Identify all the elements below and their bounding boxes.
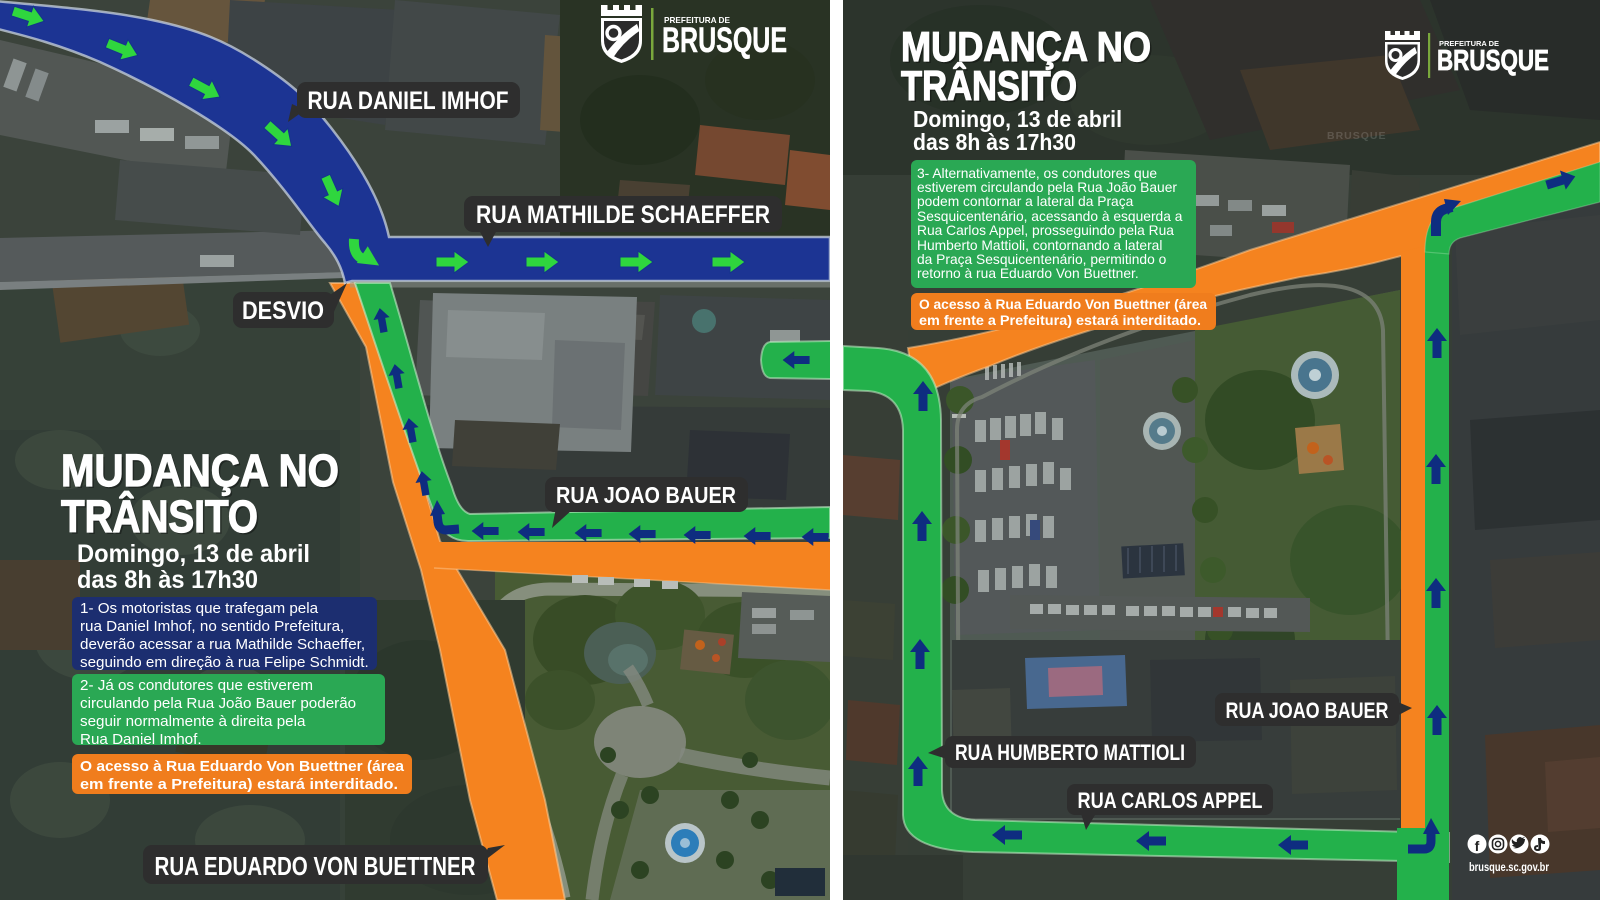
svg-text:BRUSQUE: BRUSQUE (1437, 45, 1549, 77)
svg-text:Rua Daniel Imhof.: Rua Daniel Imhof. (80, 731, 202, 748)
svg-text:TRÂNSITO: TRÂNSITO (61, 491, 258, 542)
svg-text:rua Daniel Imhof, no sentido P: rua Daniel Imhof, no sentido Prefeitura, (80, 618, 344, 635)
svg-text:em frente a Prefeitura) estará: em frente a Prefeitura) estará interdita… (919, 313, 1201, 329)
svg-text:Humberto Mattioli, contornando: Humberto Mattioli, contornando a lateral (917, 238, 1162, 253)
svg-text:f: f (1475, 838, 1480, 854)
svg-text:podem contornar a lateral da P: podem contornar a lateral da Praça (917, 194, 1134, 209)
svg-text:BRUSQUE: BRUSQUE (662, 21, 787, 60)
svg-text:seguindo em direção à rua Feli: seguindo em direção à rua Felipe Schmidt… (80, 654, 369, 671)
svg-text:O acesso à Rua Eduardo Von Bue: O acesso à Rua Eduardo Von Buettner (áre… (919, 297, 1207, 313)
svg-text:das 8h às 17h30: das 8h às 17h30 (913, 129, 1076, 155)
svg-text:3- Alternativamente, os condut: 3- Alternativamente, os condutores que (917, 166, 1157, 181)
svg-text:brusque.sc.gov.br: brusque.sc.gov.br (1469, 862, 1549, 874)
svg-text:deverão acessar a rua Mathilde: deverão acessar a rua Mathilde Schaeffer… (80, 636, 365, 653)
svg-text:Rua Carlos Appel, prosseguindo: Rua Carlos Appel, prosseguindo pela Rua (917, 223, 1174, 238)
svg-text:das 8h às 17h30: das 8h às 17h30 (77, 566, 258, 594)
svg-text:RUA CARLOS APPEL: RUA CARLOS APPEL (1078, 788, 1263, 813)
svg-text:RUA MATHILDE SCHAEFFER: RUA MATHILDE SCHAEFFER (476, 201, 770, 229)
svg-text:em frente a Prefeitura) estará: em frente a Prefeitura) estará interdita… (80, 776, 398, 793)
svg-text:seguir normalmente à direita p: seguir normalmente à direita pela (80, 713, 306, 730)
svg-text:circulando pela Rua João Bauer: circulando pela Rua João Bauer poderão (80, 695, 356, 712)
svg-text:MUDANÇA NO: MUDANÇA NO (61, 445, 339, 496)
svg-text:retorno à rua Eduardo Von Buet: retorno à rua Eduardo Von Buettner. (917, 266, 1139, 281)
svg-text:1- Os motoristas que trafegam: 1- Os motoristas que trafegam pela (80, 600, 319, 617)
svg-text:Domingo, 13 de abril: Domingo, 13 de abril (77, 540, 310, 568)
svg-text:TRÂNSITO: TRÂNSITO (901, 61, 1077, 109)
svg-text:RUA JOAO BAUER: RUA JOAO BAUER (1226, 698, 1389, 723)
svg-text:RUA DANIEL IMHOF: RUA DANIEL IMHOF (308, 87, 509, 115)
svg-text:Sesquicentenário, acessando à: Sesquicentenário, acessando à esquerda a (917, 209, 1183, 224)
svg-text:2- Já os condutores que estive: 2- Já os condutores que estiverem (80, 677, 313, 694)
svg-text:O acesso à Rua Eduardo Von Bue: O acesso à Rua Eduardo Von Buettner (áre… (80, 758, 405, 775)
svg-text:DESVIO: DESVIO (242, 297, 324, 325)
svg-text:RUA EDUARDO VON BUETTNER: RUA EDUARDO VON BUETTNER (155, 851, 476, 881)
svg-text:estiverem circulando pela Rua: estiverem circulando pela Rua João Bauer (917, 180, 1177, 195)
svg-text:RUA HUMBERTO MATTIOLI: RUA HUMBERTO MATTIOLI (955, 740, 1185, 765)
svg-text:RUA JOAO BAUER: RUA JOAO BAUER (556, 482, 736, 508)
svg-text:da Praça Sesquicentenário, per: da Praça Sesquicentenário, permitindo o (917, 252, 1167, 267)
